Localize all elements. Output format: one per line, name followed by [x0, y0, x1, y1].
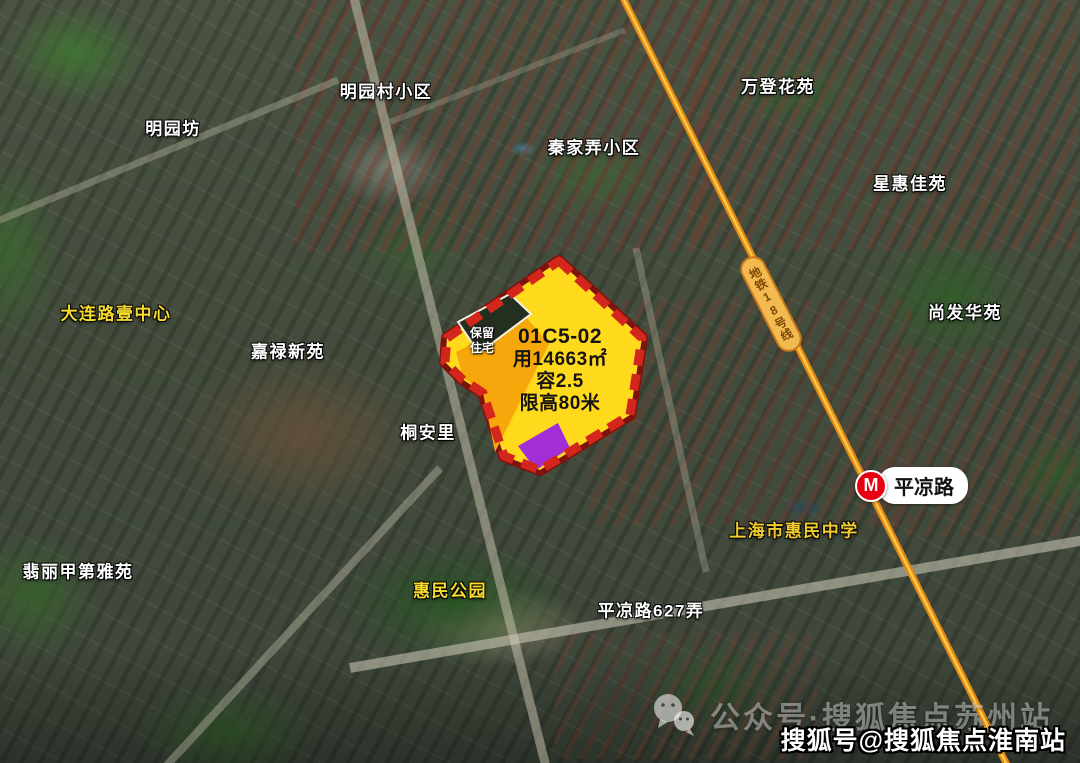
map-label-shangfa: 尚发华苑: [928, 299, 1002, 324]
map-label-jialu: 嘉禄新苑: [251, 338, 325, 363]
map-label-huimin-park: 惠民公园: [413, 577, 487, 602]
map-label-xinghui: 星惠佳苑: [873, 170, 947, 195]
metro-station-name: 平凉路: [878, 467, 968, 504]
map-label-dalianlu-center: 大连路壹中心: [61, 300, 172, 325]
map-label-pinglianglu-627: 平凉路627弄: [598, 597, 705, 622]
watermark-sohu: 搜狐号@搜狐焦点淮南站: [781, 721, 1066, 757]
map-label-huimin-school: 上海市惠民中学: [729, 517, 859, 542]
wechat-icon: [650, 692, 700, 738]
map-label-tonganli: 桐安里: [400, 419, 456, 444]
shanghai-metro-icon: M: [855, 470, 887, 502]
map-label-feili: 翡丽甲第雅苑: [23, 558, 134, 583]
map-label-qinjianong: 秦家弄小区: [548, 134, 641, 159]
satellite-map: 01C5-02 用14663㎡ 容2.5 限高80米 保留 住宅 地铁18号线 …: [0, 0, 1080, 763]
map-label-mingyuancun: 明园村小区: [340, 78, 433, 103]
map-label-wandeng: 万登花苑: [741, 73, 815, 98]
map-label-mingyuanfang: 明园坊: [145, 115, 201, 140]
metro-station-badge: M 平凉路: [855, 467, 968, 504]
